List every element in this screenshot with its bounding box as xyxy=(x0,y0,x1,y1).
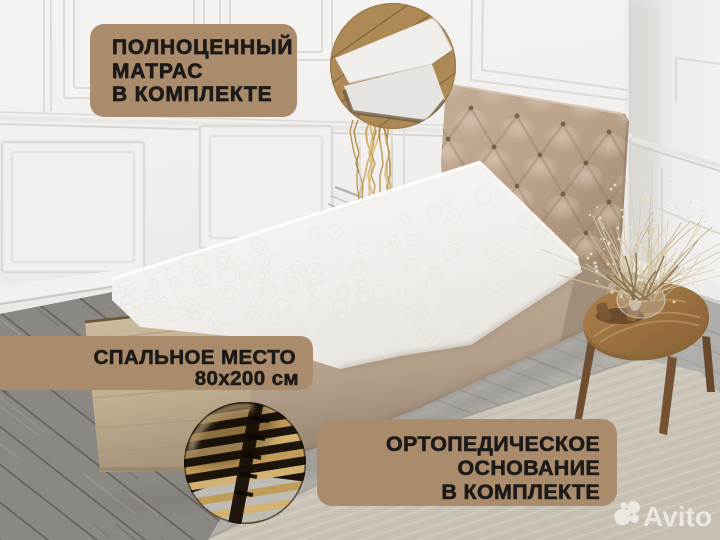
svg-text:В КОМПЛЕКТЕ: В КОМПЛЕКТЕ xyxy=(112,83,272,106)
svg-text:80х200 см: 80х200 см xyxy=(195,367,299,390)
svg-text:Avito: Avito xyxy=(643,501,712,532)
svg-text:ОРТОПЕДИЧЕСКОЕ: ОРТОПЕДИЧЕСКОЕ xyxy=(386,432,600,456)
svg-text:ПОЛНОЦЕННЫЙ: ПОЛНОЦЕННЫЙ xyxy=(112,35,293,59)
svg-text:В КОМПЛЕКТЕ: В КОМПЛЕКТЕ xyxy=(441,480,600,504)
svg-text:СПАЛЬНОЕ МЕСТО: СПАЛЬНОЕ МЕСТО xyxy=(94,346,296,369)
svg-text:МАТРАС: МАТРАС xyxy=(112,60,203,83)
svg-text:ОСНОВАНИЕ: ОСНОВАНИЕ xyxy=(457,456,600,480)
